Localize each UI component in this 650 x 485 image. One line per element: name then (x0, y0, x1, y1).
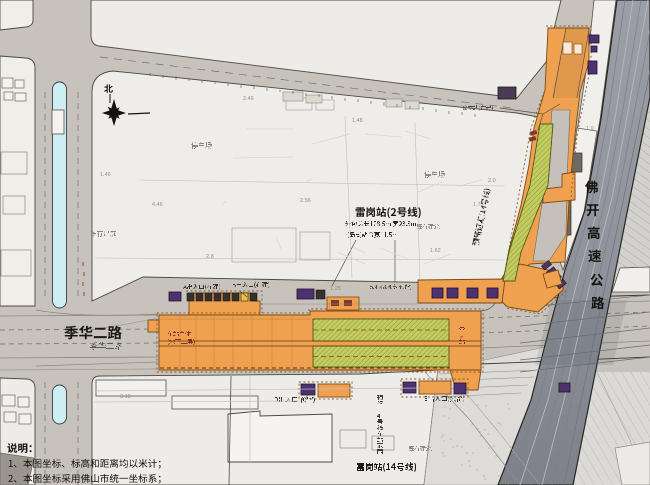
svg-text:1.25: 1.25 (330, 286, 341, 292)
svg-text:1.73: 1.73 (473, 202, 484, 208)
svg-text:2.0: 2.0 (488, 178, 496, 184)
svg-text:4.46: 4.46 (152, 202, 163, 208)
svg-text:1.62: 1.62 (430, 248, 441, 254)
svg-text:1.46: 1.46 (100, 172, 111, 178)
svg-text:3.18: 3.18 (120, 394, 131, 400)
svg-text:1.48: 1.48 (352, 118, 363, 124)
svg-text:1.9: 1.9 (586, 126, 594, 132)
svg-text:2.56: 2.56 (300, 198, 311, 204)
svg-text:2.8: 2.8 (206, 254, 214, 260)
svg-text:2.46: 2.46 (243, 96, 254, 102)
